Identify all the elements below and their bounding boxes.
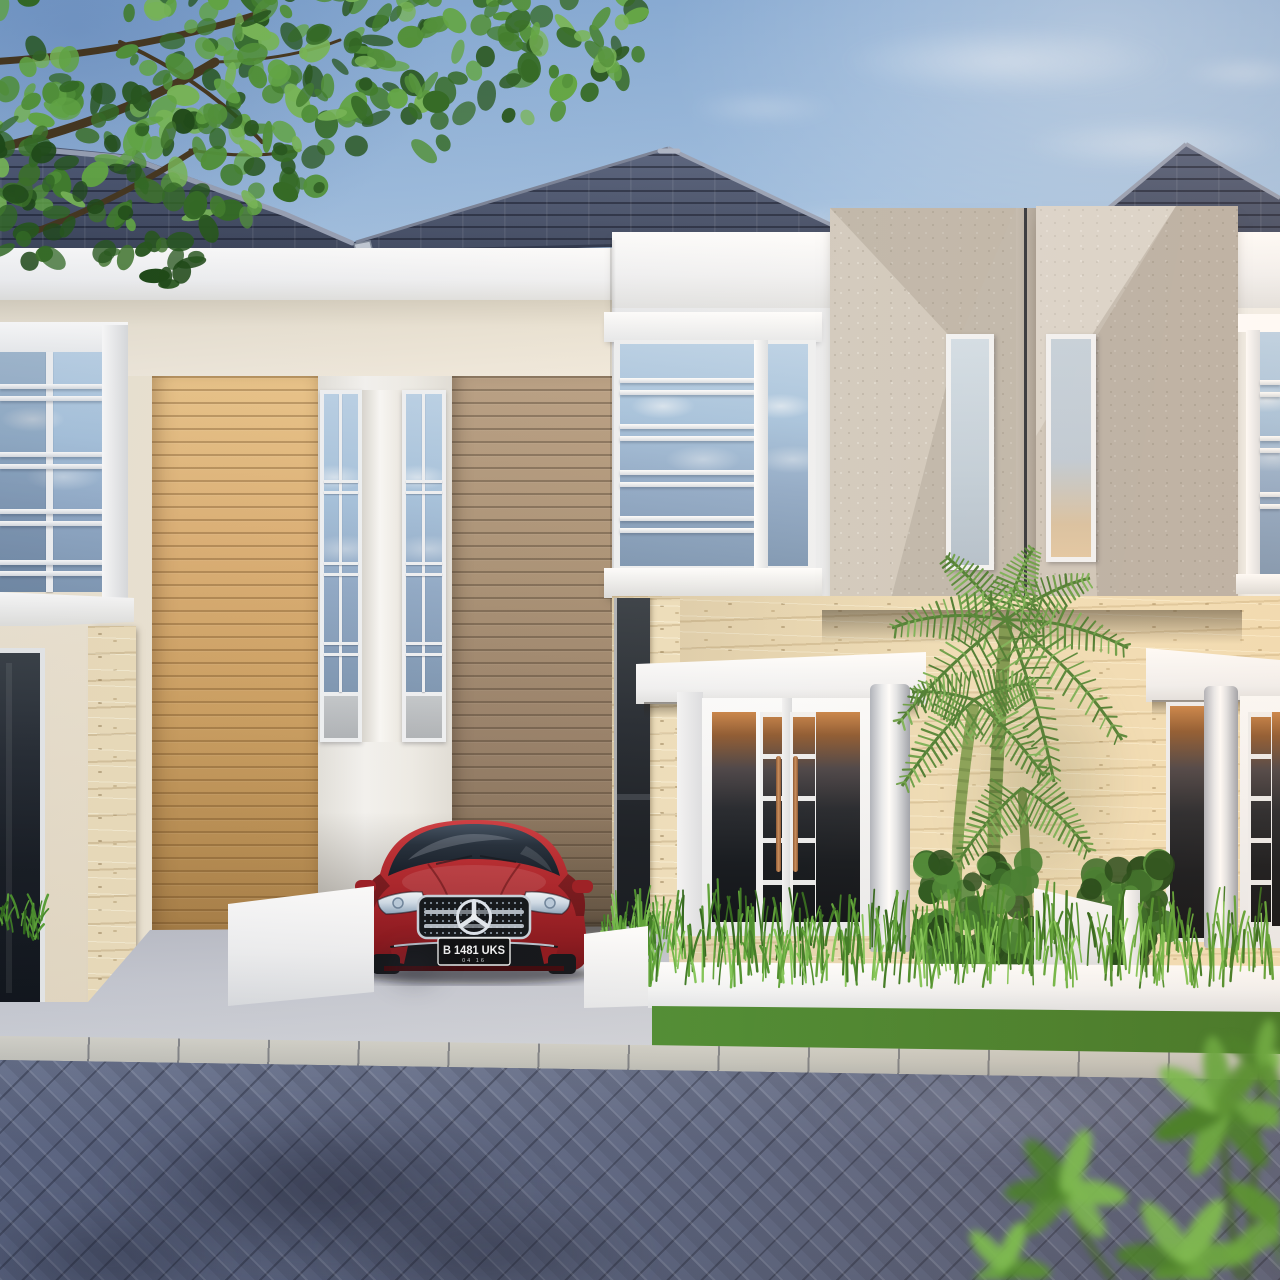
foliage-leaf bbox=[49, 97, 81, 120]
grass-blade bbox=[869, 905, 871, 948]
headlight-right-projector bbox=[545, 898, 555, 908]
foliage-leaf bbox=[166, 231, 195, 253]
foliage-leaf bbox=[0, 157, 10, 179]
grass-blade bbox=[1054, 883, 1055, 940]
foliage-leaf bbox=[17, 0, 40, 7]
grass-blade bbox=[1066, 891, 1067, 940]
street-tree-shadow bbox=[0, 1198, 280, 1280]
grass-blade bbox=[896, 891, 898, 943]
foliage-leaf bbox=[518, 107, 538, 128]
grass-blade bbox=[1129, 936, 1134, 974]
tree-foliage bbox=[0, 0, 653, 289]
grass-blade bbox=[725, 921, 732, 978]
foliage-leaf bbox=[329, 56, 351, 77]
foreground-plant bbox=[900, 1000, 1280, 1280]
grass-blade bbox=[738, 910, 739, 965]
carport-low-wall bbox=[226, 884, 376, 1008]
grass-blade bbox=[1052, 905, 1053, 943]
foliage-leaf bbox=[114, 243, 137, 273]
grass-blade bbox=[24, 911, 25, 933]
grass-blade bbox=[833, 928, 839, 961]
foliage-leaf bbox=[449, 38, 468, 65]
grass-blade bbox=[872, 890, 874, 947]
grass-blade bbox=[847, 938, 848, 982]
foliage-leaf bbox=[549, 65, 559, 79]
grass-blade bbox=[668, 924, 672, 951]
carport-low-wall-right bbox=[582, 926, 648, 1008]
grass-blade bbox=[10, 916, 13, 932]
foliage-leaf bbox=[123, 3, 136, 22]
grass-blade bbox=[1162, 925, 1163, 964]
grass-blade bbox=[8, 906, 15, 920]
foliage-leaf bbox=[280, 0, 299, 4]
grass-blade bbox=[1243, 930, 1244, 962]
grass-blade bbox=[1248, 932, 1250, 970]
grass-blade bbox=[733, 950, 734, 986]
mercedes-star-icon bbox=[458, 901, 491, 934]
foliage-leaf bbox=[631, 46, 646, 63]
grass-blade bbox=[703, 931, 704, 966]
foliage-leaf bbox=[162, 182, 185, 211]
grass-blade bbox=[663, 897, 664, 929]
grass-blade bbox=[874, 948, 875, 977]
hood-highlight bbox=[402, 865, 546, 899]
grass-blade bbox=[962, 914, 963, 967]
grass-blade bbox=[770, 908, 775, 964]
grass-blade bbox=[675, 918, 676, 966]
rendered-scene: B 1481 UKS 04 16 bbox=[0, 0, 1280, 1280]
carport-wall-shadow bbox=[366, 930, 462, 1004]
grass-blade bbox=[1173, 892, 1175, 944]
grass-blade bbox=[826, 909, 835, 945]
headlight-left-projector bbox=[393, 898, 403, 908]
foliage-leaf bbox=[118, 205, 133, 220]
street-tree-shadow bbox=[250, 1178, 720, 1280]
grass-blade bbox=[954, 931, 956, 974]
foliage-leaf bbox=[281, 172, 298, 190]
foliage-leaf bbox=[499, 105, 518, 125]
grass-blade bbox=[1088, 917, 1092, 965]
grass-blade bbox=[1226, 924, 1230, 958]
foliage-leaf bbox=[0, 0, 11, 22]
foliage-leaf bbox=[344, 134, 369, 158]
grass-blade bbox=[1261, 914, 1262, 960]
tree-canopy bbox=[0, 0, 1280, 400]
grass-blade bbox=[925, 944, 932, 987]
foliage-leaf bbox=[557, 0, 582, 13]
foliage-leaf bbox=[433, 132, 454, 154]
foliage-leaf bbox=[277, 2, 295, 20]
grass-blade bbox=[848, 895, 850, 954]
grass-blade bbox=[1039, 929, 1040, 961]
foliage-leaf bbox=[476, 79, 498, 112]
foliage-leaf bbox=[0, 240, 17, 260]
foliage-leaf bbox=[300, 0, 339, 7]
foliage-leaf bbox=[547, 99, 569, 125]
grass-blade bbox=[1054, 946, 1059, 985]
foliage-leaf bbox=[577, 79, 603, 105]
car-mirror-right bbox=[572, 880, 593, 893]
license-plate-expiry: 04 16 bbox=[462, 958, 486, 964]
foliage-leaf bbox=[74, 0, 100, 1]
foliage-leaf bbox=[588, 4, 614, 33]
grass-blade bbox=[692, 930, 701, 963]
grass-blade bbox=[713, 929, 716, 978]
